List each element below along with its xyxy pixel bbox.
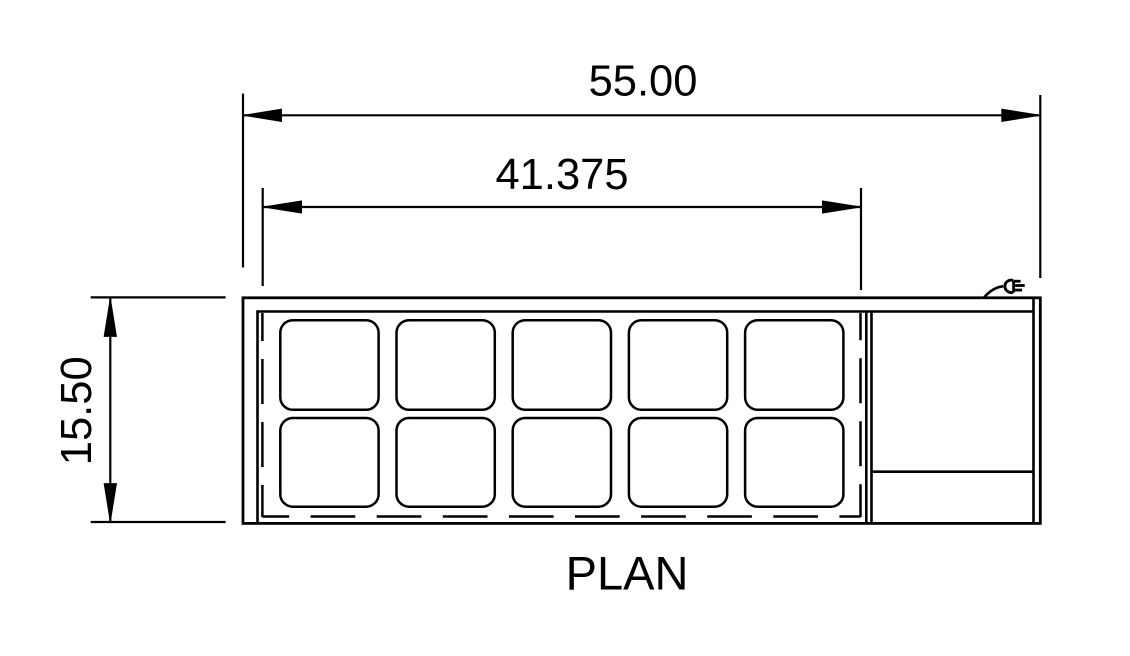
svg-text:15.50: 15.50 (53, 356, 101, 465)
svg-text:41.375: 41.375 (495, 151, 628, 199)
svg-text:PLAN: PLAN (566, 546, 689, 599)
svg-text:55.00: 55.00 (589, 58, 698, 106)
